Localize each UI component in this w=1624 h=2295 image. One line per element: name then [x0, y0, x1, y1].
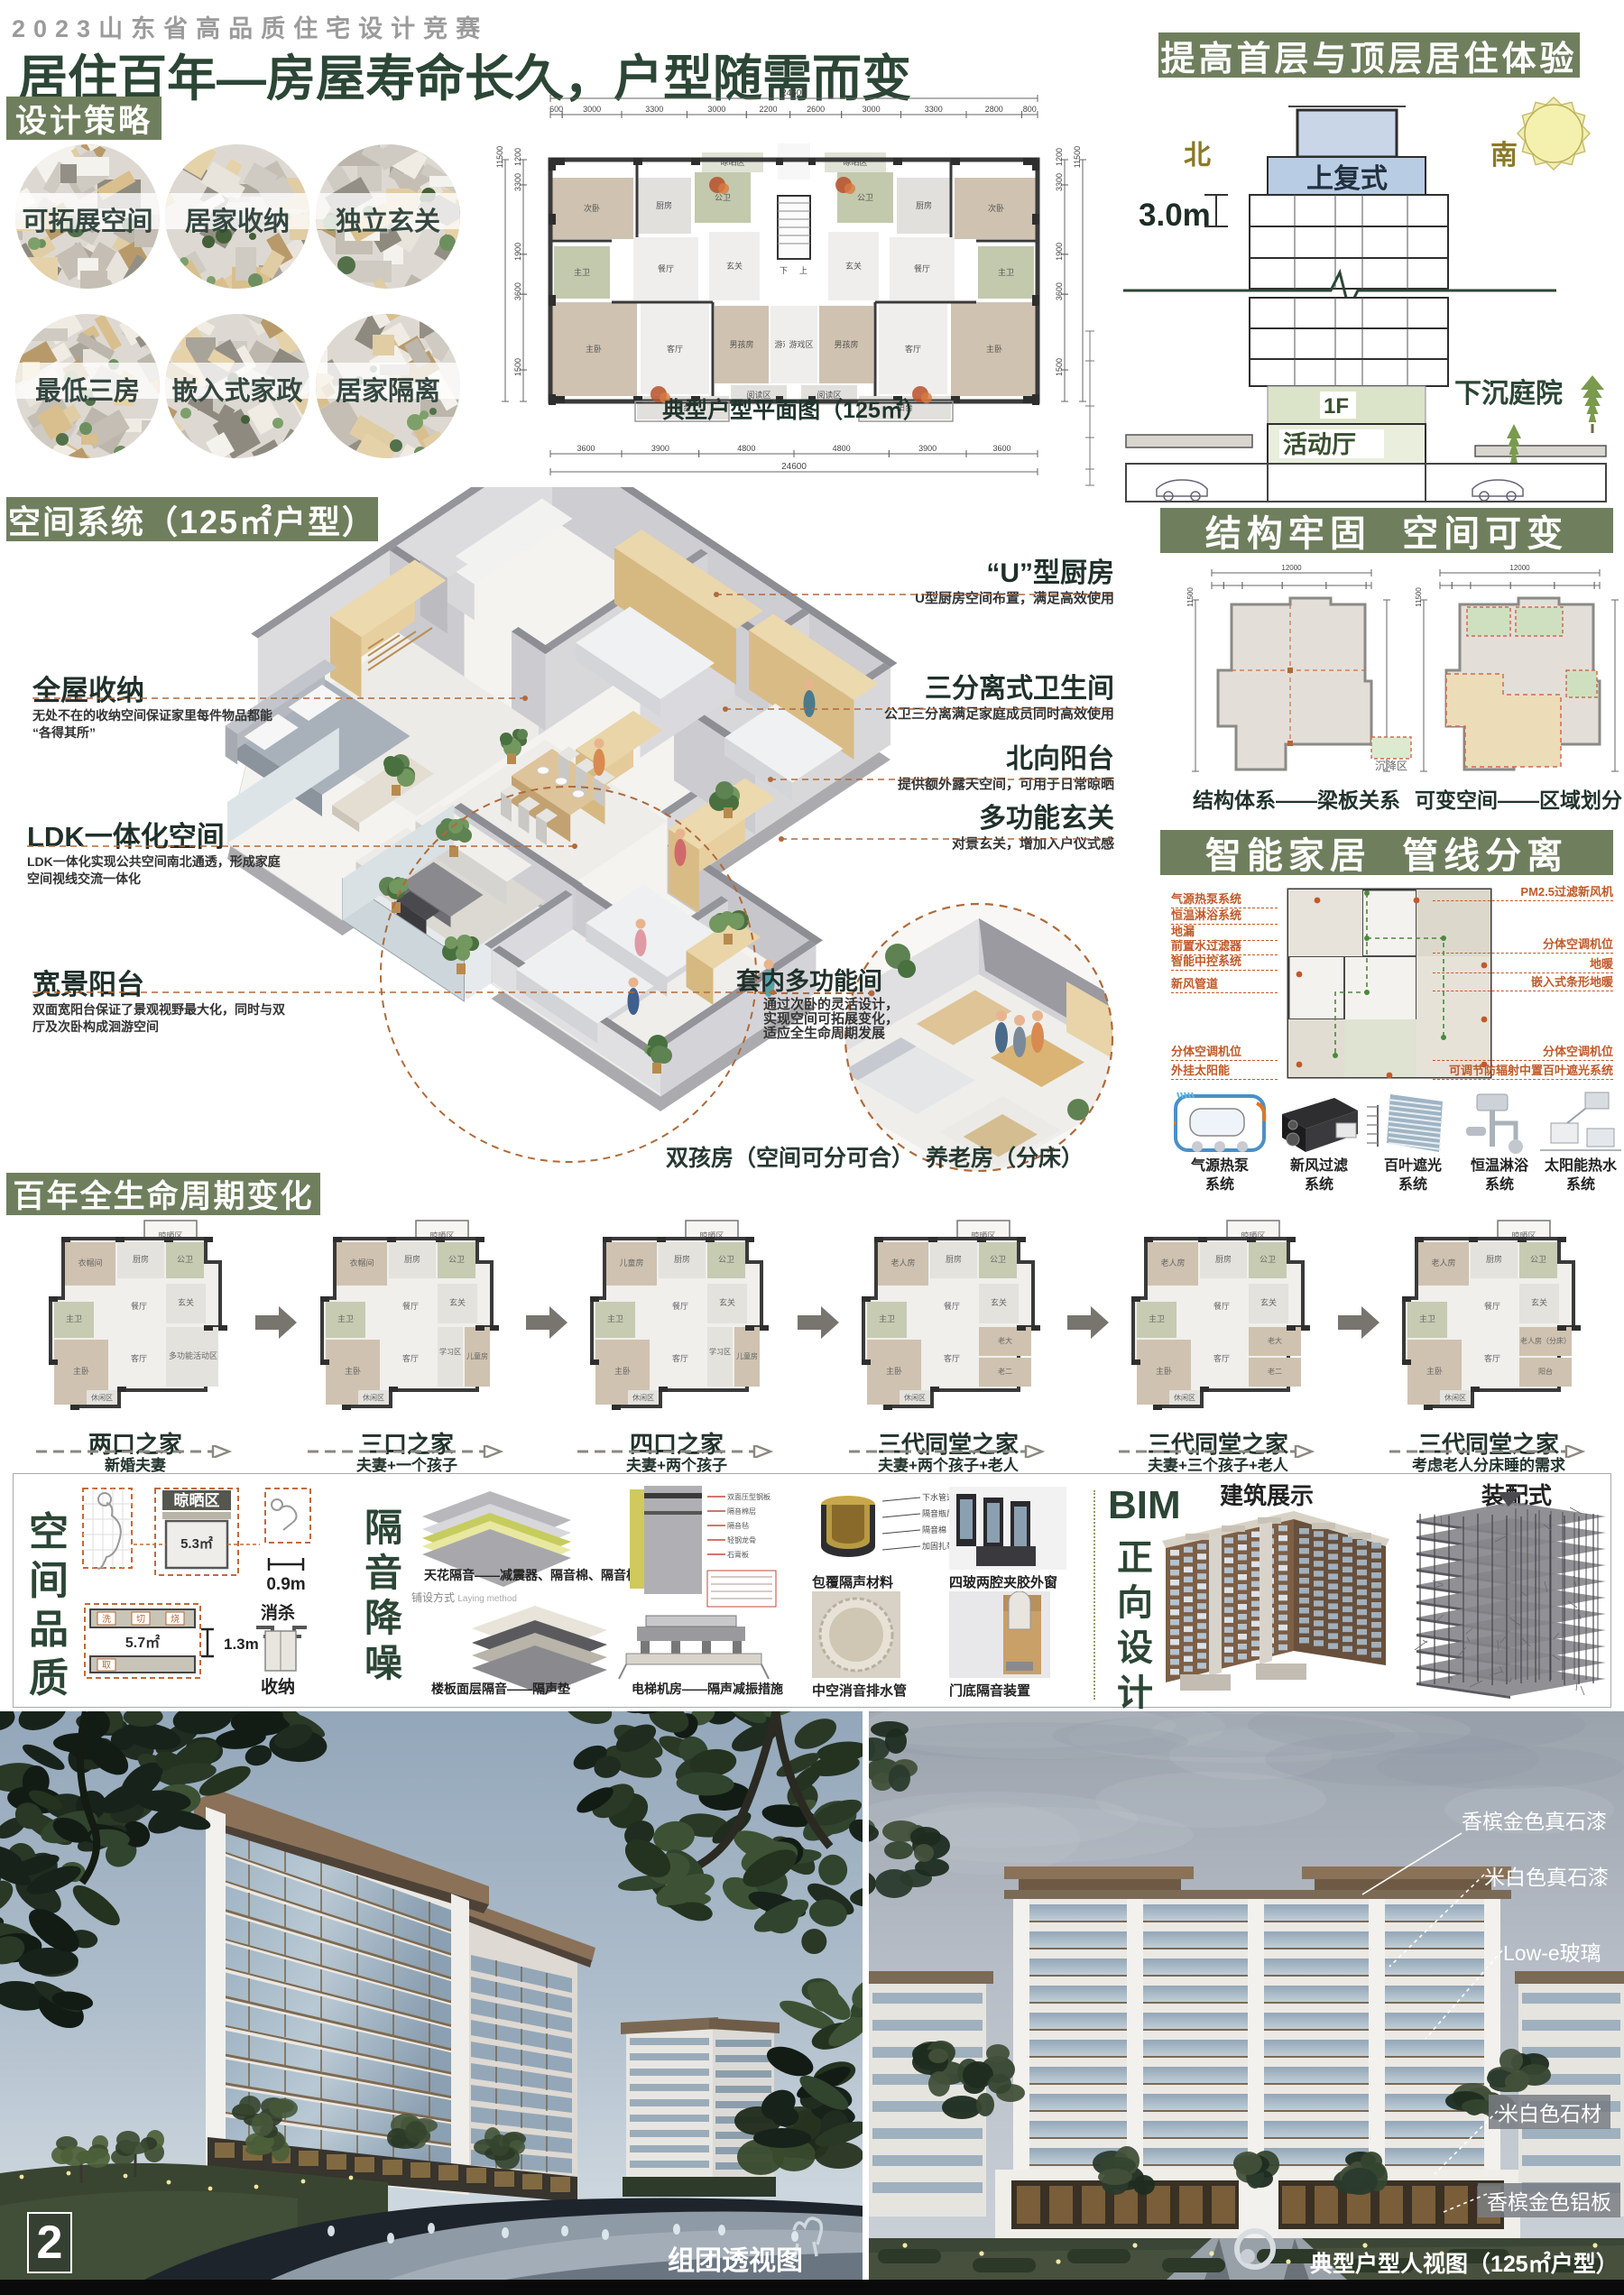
svg-text:主卧: 主卧 [986, 344, 1002, 354]
svg-text:轻钢龙骨: 轻钢龙骨 [727, 1535, 756, 1544]
svg-text:1.3m: 1.3m [224, 1636, 259, 1653]
svg-text:隔音毡: 隔音毡 [727, 1521, 749, 1530]
svg-text:儿童房: 儿童房 [736, 1351, 758, 1360]
svg-text:餐厅: 餐厅 [131, 1301, 147, 1311]
svg-text:次卧: 次卧 [584, 203, 600, 213]
svg-text:公卫: 公卫 [1260, 1255, 1276, 1264]
svg-text:2200: 2200 [759, 105, 777, 114]
svg-text:3600: 3600 [577, 444, 595, 453]
svg-text:5.3㎡: 5.3㎡ [180, 1535, 213, 1552]
svg-text:老大: 老大 [1268, 1336, 1282, 1345]
svg-text:主卫: 主卫 [574, 267, 590, 277]
svg-text:客厅: 客厅 [672, 1353, 688, 1363]
svg-text:1900: 1900 [1055, 243, 1064, 261]
svg-text:玄关: 玄关 [449, 1297, 466, 1307]
svg-text:玄关: 玄关 [991, 1297, 1007, 1307]
svg-text:公卫: 公卫 [715, 193, 731, 202]
svg-text:餐厅: 餐厅 [658, 263, 674, 273]
svg-text:餐厅: 餐厅 [1484, 1301, 1500, 1311]
svg-text:主卫: 主卫 [337, 1313, 354, 1323]
svg-text:老二: 老二 [1268, 1367, 1282, 1376]
svg-text:主卧: 主卧 [614, 1366, 631, 1376]
svg-text:主卧: 主卧 [1156, 1366, 1172, 1376]
svg-text:客厅: 客厅 [905, 344, 921, 354]
svg-text:消杀: 消杀 [261, 1602, 295, 1623]
svg-text:3300: 3300 [645, 105, 663, 114]
svg-text:休闲区: 休闲区 [91, 1393, 113, 1402]
svg-text:3000: 3000 [583, 105, 601, 114]
svg-text:老大: 老大 [998, 1336, 1012, 1345]
svg-text:老人房（分床）: 老人房（分床） [1520, 1336, 1571, 1345]
svg-text:上: 上 [799, 266, 807, 275]
svg-text:餐厅: 餐厅 [402, 1301, 419, 1311]
svg-text:休闲区: 休闲区 [1444, 1393, 1466, 1402]
svg-text:主卫: 主卫 [607, 1313, 623, 1323]
svg-text:2800: 2800 [985, 105, 1003, 114]
svg-text:客厅: 客厅 [402, 1353, 419, 1363]
svg-text:男孩房: 男孩房 [834, 339, 858, 349]
svg-text:3600: 3600 [1055, 282, 1064, 300]
svg-text:公卫: 公卫 [1530, 1255, 1546, 1264]
svg-text:切: 切 [136, 1614, 145, 1625]
svg-text:11500: 11500 [495, 146, 504, 168]
svg-text:12000: 12000 [1509, 564, 1530, 572]
svg-text:厨房: 厨房 [1486, 1254, 1502, 1264]
svg-text:4800: 4800 [833, 444, 851, 453]
svg-text:上复式: 上复式 [1306, 164, 1388, 194]
svg-text:3.0m: 3.0m [1139, 198, 1211, 233]
svg-text:双面压型钢板: 双面压型钢板 [727, 1492, 770, 1501]
svg-text:0.9m: 0.9m [266, 1575, 305, 1594]
svg-text:11500: 11500 [1415, 587, 1423, 607]
svg-text:公卫: 公卫 [857, 193, 873, 202]
svg-text:沉降区: 沉降区 [1375, 760, 1407, 771]
svg-text:洗: 洗 [102, 1614, 111, 1625]
svg-text:3900: 3900 [918, 444, 937, 453]
svg-text:老人房: 老人房 [890, 1258, 915, 1267]
svg-text:12000: 12000 [1281, 564, 1302, 572]
svg-text:阳台: 阳台 [1538, 1367, 1553, 1376]
svg-text:主卫: 主卫 [879, 1313, 895, 1323]
svg-text:学习区: 学习区 [439, 1347, 461, 1356]
svg-text:主卧: 主卧 [73, 1366, 89, 1376]
svg-text:3300: 3300 [1055, 173, 1064, 191]
svg-text:餐厅: 餐厅 [914, 263, 930, 273]
svg-text:老人房: 老人房 [1431, 1258, 1455, 1267]
svg-text:烧: 烧 [171, 1613, 180, 1625]
svg-text:11500: 11500 [1186, 587, 1195, 607]
svg-text:主卧: 主卧 [345, 1366, 361, 1376]
svg-text:3600: 3600 [513, 282, 522, 300]
svg-text:老人房: 老人房 [1160, 1258, 1185, 1267]
svg-text:餐厅: 餐厅 [672, 1301, 688, 1311]
svg-text:玄关: 玄关 [845, 261, 862, 271]
svg-text:玄关: 玄关 [726, 261, 743, 271]
svg-text:主卫: 主卫 [66, 1313, 82, 1323]
svg-text:晾晒区: 晾晒区 [174, 1491, 220, 1509]
svg-text:铺设方式 Laying method: 铺设方式 Laying method [411, 1590, 517, 1604]
svg-text:玄关: 玄关 [719, 1297, 735, 1307]
svg-text:老二: 老二 [998, 1367, 1012, 1376]
svg-text:客厅: 客厅 [1213, 1353, 1230, 1363]
svg-text:休闲区: 休闲区 [632, 1393, 654, 1402]
svg-text:儿童房: 儿童房 [619, 1258, 643, 1267]
svg-text:厨房: 厨房 [916, 200, 932, 210]
svg-text:3600: 3600 [992, 444, 1010, 453]
svg-text:3000: 3000 [707, 105, 725, 114]
svg-text:衣帽间: 衣帽间 [78, 1258, 102, 1267]
svg-text:4800: 4800 [737, 444, 755, 453]
svg-text:3300: 3300 [513, 173, 522, 191]
svg-text:石膏板: 石膏板 [727, 1550, 749, 1559]
svg-text:衣帽间: 衣帽间 [349, 1258, 374, 1267]
svg-text:厨房: 厨房 [1215, 1254, 1232, 1264]
svg-text:600: 600 [549, 105, 563, 114]
svg-text:主卫: 主卫 [1419, 1313, 1435, 1323]
svg-text:主卧: 主卧 [586, 344, 602, 354]
svg-text:学习区: 学习区 [709, 1347, 731, 1356]
svg-text:主卫: 主卫 [1149, 1313, 1165, 1323]
svg-text:玄关: 玄关 [178, 1297, 194, 1307]
svg-text:收纳: 收纳 [261, 1676, 295, 1697]
svg-text:天花隔音——减震器、隔音棉、隔音板: 天花隔音——减震器、隔音棉、隔音板 [424, 1568, 640, 1582]
svg-text:24600: 24600 [781, 88, 807, 98]
svg-text:厨房: 厨房 [656, 200, 672, 210]
svg-text:1500: 1500 [1055, 358, 1064, 376]
svg-text:24600: 24600 [781, 462, 807, 472]
svg-text:3000: 3000 [863, 105, 881, 114]
svg-text:玄关: 玄关 [1260, 1297, 1277, 1307]
svg-text:公卫: 公卫 [448, 1255, 465, 1264]
svg-text:玄关: 玄关 [1531, 1297, 1547, 1307]
svg-text:厨房: 厨房 [404, 1254, 420, 1264]
svg-text:主卫: 主卫 [998, 267, 1014, 277]
svg-text:5.7㎡: 5.7㎡ [125, 1634, 160, 1651]
svg-text:1F: 1F [1324, 394, 1349, 419]
svg-text:800: 800 [1023, 105, 1037, 114]
svg-text:南: 南 [1490, 141, 1518, 171]
svg-text:主卧: 主卧 [886, 1366, 902, 1376]
svg-text:1500: 1500 [513, 358, 522, 376]
svg-text:1900: 1900 [513, 243, 522, 261]
svg-text:1200: 1200 [1055, 148, 1064, 166]
svg-text:客厅: 客厅 [1484, 1353, 1500, 1363]
svg-text:多功能活动区: 多功能活动区 [169, 1350, 217, 1360]
svg-text:2600: 2600 [807, 105, 825, 114]
svg-text:下沉庭院: 下沉庭院 [1454, 378, 1563, 409]
svg-text:活动厅: 活动厅 [1283, 431, 1356, 458]
svg-text:儿童房: 儿童房 [466, 1351, 488, 1360]
svg-text:3900: 3900 [651, 444, 669, 453]
svg-text:3300: 3300 [925, 105, 943, 114]
svg-text:休闲区: 休闲区 [904, 1393, 926, 1402]
svg-text:客厅: 客厅 [131, 1353, 147, 1363]
svg-text:楼板面层隔音——隔声垫: 楼板面层隔音——隔声垫 [431, 1682, 570, 1696]
svg-text:典型户型平面图（125㎡）: 典型户型平面图（125㎡） [662, 397, 926, 423]
svg-text:餐厅: 餐厅 [1213, 1301, 1230, 1311]
svg-text:1200: 1200 [513, 148, 522, 166]
svg-text:客厅: 客厅 [667, 344, 683, 354]
svg-text:休闲区: 休闲区 [1174, 1393, 1195, 1402]
svg-text:取: 取 [102, 1660, 111, 1671]
svg-text:电梯机房——隔声减振措施: 电梯机房——隔声减振措施 [632, 1682, 783, 1696]
svg-text:休闲区: 休闲区 [363, 1393, 384, 1402]
svg-text:公卫: 公卫 [990, 1255, 1006, 1264]
svg-text:男孩房: 男孩房 [729, 339, 753, 349]
svg-text:餐厅: 餐厅 [944, 1301, 960, 1311]
svg-text:隔音棉层: 隔音棉层 [727, 1507, 756, 1516]
svg-text:游戏区: 游戏区 [789, 339, 813, 349]
svg-text:隔音棉: 隔音棉 [922, 1525, 946, 1535]
svg-text:公卫: 公卫 [718, 1255, 734, 1264]
svg-text:厨房: 厨房 [946, 1254, 962, 1264]
svg-text:厨房: 厨房 [133, 1254, 149, 1264]
svg-text:客厅: 客厅 [944, 1353, 960, 1363]
svg-text:主卧: 主卧 [1426, 1366, 1443, 1376]
svg-text:次卧: 次卧 [988, 203, 1004, 213]
svg-text:厨房: 厨房 [674, 1254, 690, 1264]
svg-text:公卫: 公卫 [177, 1255, 193, 1264]
svg-text:北: 北 [1184, 141, 1211, 171]
svg-text:下: 下 [780, 266, 788, 275]
